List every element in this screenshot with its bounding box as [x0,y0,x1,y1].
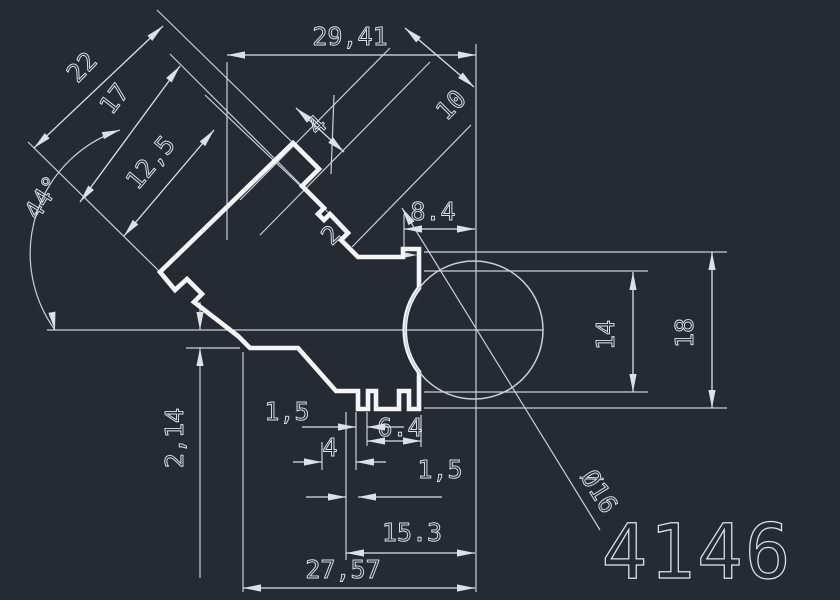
cad-drawing-svg: 22 17 12,5 44° 29,41 4 10 8.4 2 14 18 2,… [0,0,840,600]
dim-label-12-5: 12,5 [120,130,181,195]
profile-outline [160,143,419,409]
cad-drawing-canvas: 22 17 12,5 44° 29,41 4 10 8.4 2 14 18 2,… [0,0,840,600]
dim-label-27-57: 27,57 [305,555,380,584]
dim-label-18: 18 [670,318,699,348]
dim-label-4-top: 4 [301,109,332,140]
dim-label-10: 10 [430,84,472,126]
dimension-labels: 22 17 12,5 44° 29,41 4 10 8.4 2 14 18 2,… [19,22,699,584]
dim-label-14: 14 [591,320,620,350]
angle-44-arc [30,130,120,330]
dim-label-6-4: 6.4 [377,413,422,442]
part-number: 4146 [601,507,792,596]
dim-label-1-5-left: 1,5 [264,397,309,426]
dim-label-15-3: 15.3 [382,518,442,547]
dim-label-17: 17 [94,78,135,120]
dim-label-2-14: 2,14 [160,408,189,468]
dim-label-1-5-right: 1,5 [417,455,462,484]
dim-label-angle-44: 44° [19,171,68,225]
dim-label-4-bottom: 4 [322,433,337,462]
dim-label-22: 22 [61,46,103,88]
dim-label-8-4: 8.4 [410,197,455,226]
dim-label-29-41: 29,41 [312,22,387,51]
